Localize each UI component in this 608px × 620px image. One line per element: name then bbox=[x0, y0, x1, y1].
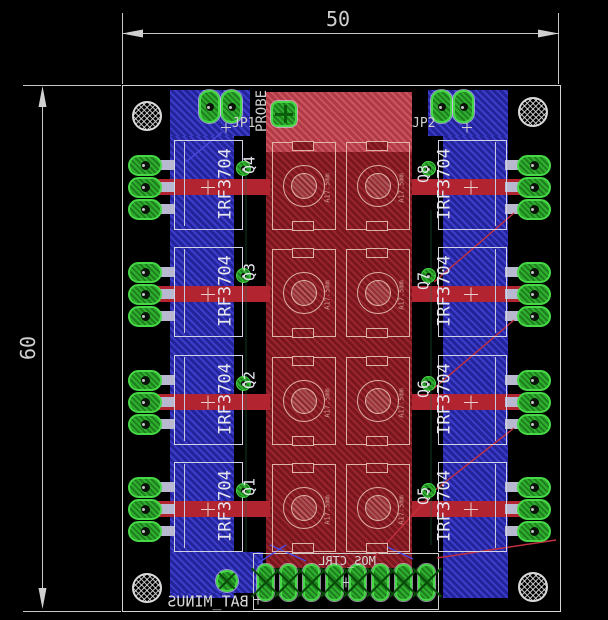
drill-glint bbox=[531, 208, 534, 211]
drill-glint bbox=[531, 379, 534, 382]
capacitor-size-label: A17.5mm bbox=[325, 280, 332, 310]
transistor-part-label: IRF3704 bbox=[218, 470, 235, 542]
capacitor-size-label: A17.5mm bbox=[325, 388, 332, 418]
drill-glint bbox=[142, 530, 145, 533]
drill-glint bbox=[531, 293, 534, 296]
capacitor-inner-circle bbox=[365, 495, 391, 521]
drill-glint bbox=[531, 423, 534, 426]
drill-glint bbox=[531, 530, 534, 533]
connector-pad[interactable] bbox=[395, 564, 412, 601]
drill-glint bbox=[142, 164, 145, 167]
capacitor-notch-top bbox=[292, 356, 314, 366]
probe-label: PROBE bbox=[255, 90, 269, 132]
transistor-tab-line bbox=[184, 249, 185, 333]
drill-glint bbox=[531, 186, 534, 189]
transistor-part-label: IRF3704 bbox=[218, 363, 235, 435]
capacitor-notch-bottom bbox=[292, 543, 314, 553]
transistor-ref-label: Q1 bbox=[243, 478, 258, 496]
transistor-part-label: IRF3704 bbox=[218, 255, 235, 327]
capacitor-inner-circle bbox=[291, 388, 317, 414]
mounting-hole[interactable] bbox=[518, 97, 548, 127]
capacitor-notch-bottom bbox=[366, 436, 388, 446]
mounting-hole[interactable] bbox=[132, 573, 162, 603]
drill-glint bbox=[142, 315, 145, 318]
capacitor-inner-circle bbox=[291, 173, 317, 199]
drill-glint bbox=[142, 293, 145, 296]
capacitor-inner-circle bbox=[291, 495, 317, 521]
drill-glint bbox=[531, 401, 534, 404]
connector-pad[interactable] bbox=[257, 564, 274, 601]
drill-glint bbox=[531, 508, 534, 511]
connector-pad[interactable] bbox=[418, 564, 435, 601]
capacitor-notch-top bbox=[292, 463, 314, 473]
drill-glint bbox=[207, 106, 210, 109]
transistor-ref-label: Q2 bbox=[243, 371, 258, 389]
drill-glint bbox=[531, 315, 534, 318]
capacitor-notch-top bbox=[366, 463, 388, 473]
capacitor-notch-top bbox=[292, 248, 314, 258]
transistor-tab-line bbox=[495, 464, 496, 548]
drill-glint bbox=[229, 106, 232, 109]
transistor-tab-line bbox=[495, 249, 496, 333]
transistor-tab-line bbox=[184, 464, 185, 548]
connector-pad[interactable] bbox=[372, 564, 389, 601]
capacitor-size-label: A17.5mm bbox=[325, 495, 332, 525]
transistor-tab-line bbox=[495, 142, 496, 226]
capacitor-size-label: A17.5mm bbox=[325, 173, 332, 203]
drill-glint bbox=[142, 423, 145, 426]
capacitor-notch-bottom bbox=[366, 328, 388, 338]
drill-glint bbox=[461, 106, 464, 109]
capacitor-notch-bottom bbox=[292, 328, 314, 338]
drill-glint bbox=[142, 186, 145, 189]
mos-ctrl-label: MOS_CTRL bbox=[318, 555, 376, 567]
capacitor-notch-top bbox=[292, 141, 314, 151]
capacitor-notch-bottom bbox=[292, 221, 314, 231]
capacitor-inner-circle bbox=[365, 388, 391, 414]
bat-minus-pad[interactable] bbox=[216, 570, 238, 592]
connector-pad[interactable] bbox=[280, 564, 297, 601]
drill-glint bbox=[439, 106, 442, 109]
capacitor-size-label: A17.5mm bbox=[399, 495, 406, 525]
capacitor-inner-circle bbox=[365, 173, 391, 199]
transistor-ref-label: Q8 bbox=[417, 165, 432, 183]
capacitor-inner-circle bbox=[291, 280, 317, 306]
transistor-ref-label: Q4 bbox=[243, 156, 258, 174]
mounting-hole[interactable] bbox=[518, 572, 548, 602]
drill-glint bbox=[142, 508, 145, 511]
drill-glint bbox=[531, 486, 534, 489]
capacitor-notch-bottom bbox=[366, 543, 388, 553]
transistor-part-label: IRF3704 bbox=[437, 148, 454, 220]
drill-glint bbox=[531, 164, 534, 167]
transistor-ref-label: Q3 bbox=[243, 263, 258, 281]
capacitor-size-label: A17.5mm bbox=[399, 388, 406, 418]
capacitor-notch-bottom bbox=[366, 221, 388, 231]
connector-pad[interactable] bbox=[303, 564, 320, 601]
drill-glint bbox=[142, 379, 145, 382]
bat-minus-label: BAT_MINUS bbox=[167, 595, 248, 610]
capacitor-notch-bottom bbox=[292, 436, 314, 446]
transistor-ref-label: Q5 bbox=[417, 487, 432, 505]
drill-glint bbox=[531, 271, 534, 274]
drill-glint bbox=[142, 271, 145, 274]
capacitor-size-label: A17.5mm bbox=[399, 173, 406, 203]
capacitor-notch-top bbox=[366, 248, 388, 258]
mounting-hole[interactable] bbox=[132, 101, 162, 131]
drill-glint bbox=[142, 208, 145, 211]
drill-glint bbox=[142, 401, 145, 404]
drill-glint bbox=[142, 486, 145, 489]
jp1-label: JP1 bbox=[232, 117, 255, 130]
capacitor-inner-circle bbox=[365, 280, 391, 306]
transistor-part-label: IRF3704 bbox=[437, 470, 454, 542]
transistor-part-label: IRF3704 bbox=[437, 363, 454, 435]
jp2-label: JP2 bbox=[412, 117, 435, 130]
transistor-tab-line bbox=[184, 142, 185, 226]
height-dimension-label: 60 bbox=[18, 336, 38, 360]
transistor-ref-label: Q6 bbox=[417, 380, 432, 398]
capacitor-size-label: A17.5mm bbox=[399, 280, 406, 310]
capacitor-notch-top bbox=[366, 141, 388, 151]
transistor-part-label: IRF3704 bbox=[218, 148, 235, 220]
connector-pad[interactable] bbox=[326, 564, 343, 601]
transistor-part-label: IRF3704 bbox=[437, 255, 454, 327]
probe-pad[interactable] bbox=[271, 101, 297, 127]
probe-cross bbox=[275, 113, 293, 116]
transistor-tab-line bbox=[495, 357, 496, 441]
pcb-layout-canvas[interactable]: 50 60 JP1 JP2 PROBE BAT_MINUS MOS_CTRL Q… bbox=[0, 0, 608, 620]
width-dimension-label: 50 bbox=[326, 9, 350, 29]
transistor-ref-label: Q7 bbox=[417, 272, 432, 290]
connector-pad[interactable] bbox=[349, 564, 366, 601]
transistor-tab-line bbox=[184, 357, 185, 441]
capacitor-notch-top bbox=[366, 356, 388, 366]
